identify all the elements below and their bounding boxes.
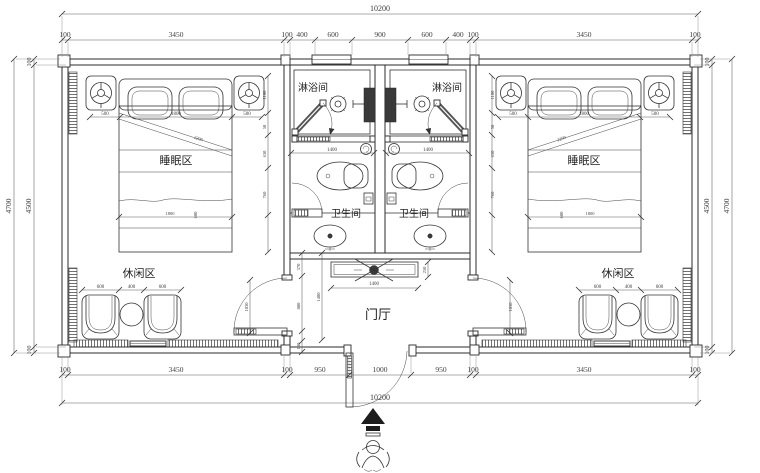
dim-bed-foot-w-right: 1800 (586, 211, 596, 216)
dim-bed-side-2: 630 (262, 150, 267, 158)
dim-bottom-5: 950 (435, 365, 447, 374)
dim-right-wall-top: 100 (705, 58, 711, 67)
dim-left-outer: 4700 (4, 198, 13, 213)
label-hall: 门厅 (365, 307, 391, 322)
entry-arrow-icon (361, 408, 385, 424)
dim-hall-v1: 880 (296, 302, 301, 310)
label-toilet-right: 卫生间 (399, 207, 429, 220)
dim-hall-v0: 370 (296, 263, 301, 271)
dim-top-3: 400 (296, 30, 308, 39)
dim-bed-side-3: 760 (262, 191, 267, 199)
guest-room-right (468, 55, 691, 355)
dim-bed-left-2: 500 (243, 112, 251, 117)
dim-bath-left: 1400 (327, 148, 338, 153)
dim-bed-side-r2: 630 (490, 150, 495, 158)
dim-overall-bottom: 10200 (370, 393, 390, 402)
entry-door-post (344, 345, 351, 356)
label-leisure-left: 休闲区 (123, 266, 156, 280)
dim-bed-right-0: 500 (509, 112, 517, 117)
dim-left-wall-bottom: 100 (27, 346, 33, 355)
dim-bed-side-0: 1100 (262, 90, 267, 100)
guest-room-left (69, 55, 292, 355)
dim-top-10: 100 (689, 30, 701, 39)
dim-bed-foot-w-left: 1800 (166, 211, 176, 216)
dim-bottom-4: 1000 (373, 365, 388, 374)
label-sleeping-left: 睡眠区 (160, 154, 193, 167)
dim-overall-top: 10200 (370, 4, 390, 13)
dim-top-2: 100 (281, 30, 293, 39)
dim-right-outer: 4700 (722, 198, 731, 213)
dim-bed-foot-h-right: 600 (559, 211, 564, 219)
dim-chairs-left-2: 600 (159, 285, 167, 290)
dim-bed-side-r1: 50 (490, 124, 495, 129)
dim-bed-left-0: 500 (101, 112, 109, 117)
hall-console (331, 259, 418, 281)
dim-bottom-8: 100 (689, 365, 701, 374)
dim-left-inner: 4500 (24, 198, 33, 213)
dim-bed-right-2: 500 (651, 112, 659, 117)
dim-bottom-3: 950 (314, 365, 326, 374)
person-figure (357, 408, 390, 471)
dim-bed-side-r3: 760 (490, 191, 495, 199)
floor-plan-page: 10200 100 3450 100 400 600 900 600 400 1… (0, 0, 760, 473)
label-sleeping-right: 睡眠区 (568, 154, 601, 167)
dim-chairs-left-0: 600 (97, 285, 105, 290)
dim-hall-v2: 180 (296, 342, 301, 350)
dim-room-door-left: 1030 (244, 302, 249, 312)
floor-plan-svg: 10200 100 3450 100 400 600 900 600 400 1… (0, 0, 760, 473)
dim-bath-right: 1400 (423, 148, 434, 153)
dim-bed-side-1: 50 (262, 124, 267, 129)
dim-right-wall-bottom: 100 (705, 346, 711, 355)
dim-chairs-right-2: 600 (656, 285, 664, 290)
dim-top-7: 400 (452, 30, 464, 39)
dim-right-inner: 4500 (702, 198, 711, 213)
dim-room-door-right: 1030 (508, 302, 513, 312)
dim-chairs-left-1: 400 (128, 285, 136, 290)
dim-bottom-6: 100 (467, 365, 479, 374)
dim-console-w: 1400 (369, 282, 380, 287)
dim-bottom-2: 100 (281, 365, 293, 374)
dim-top-0: 100 (59, 30, 71, 39)
dim-bottom-1: 3450 (169, 365, 184, 374)
dim-hall-h: 1400 (316, 292, 321, 302)
dim-left-wall-top: 100 (27, 58, 33, 67)
dim-top-6: 600 (421, 30, 433, 39)
dim-chairs-right-0: 600 (594, 285, 602, 290)
dim-bed-right-1: 1800 (579, 112, 590, 117)
dim-bed-diag-right: 2200 (556, 135, 567, 143)
dim-top-9: 3450 (577, 30, 592, 39)
dim-top-4: 600 (327, 30, 339, 39)
dim-chairs-right-1: 400 (625, 285, 633, 290)
label-shower-left: 淋浴间 (298, 81, 328, 94)
dim-bottom-0: 100 (59, 365, 71, 374)
dim-top-8: 100 (467, 30, 479, 39)
dim-bed-left-1: 1800 (171, 112, 182, 117)
dim-bed-foot-h-left: 600 (193, 211, 198, 219)
label-leisure-right: 休闲区 (602, 266, 635, 280)
dim-bottom-7: 3450 (577, 365, 592, 374)
label-toilet-left: 卫生间 (331, 207, 361, 220)
dim-bed-diag-left: 2200 (193, 135, 204, 143)
entry-door-post (409, 345, 416, 356)
dim-top-1: 3450 (169, 30, 184, 39)
dim-top-5: 900 (374, 30, 386, 39)
dim-bed-side-r0: 1100 (490, 90, 495, 100)
dim-console-d: 250 (422, 266, 427, 274)
label-shower-right: 淋浴间 (432, 81, 462, 94)
